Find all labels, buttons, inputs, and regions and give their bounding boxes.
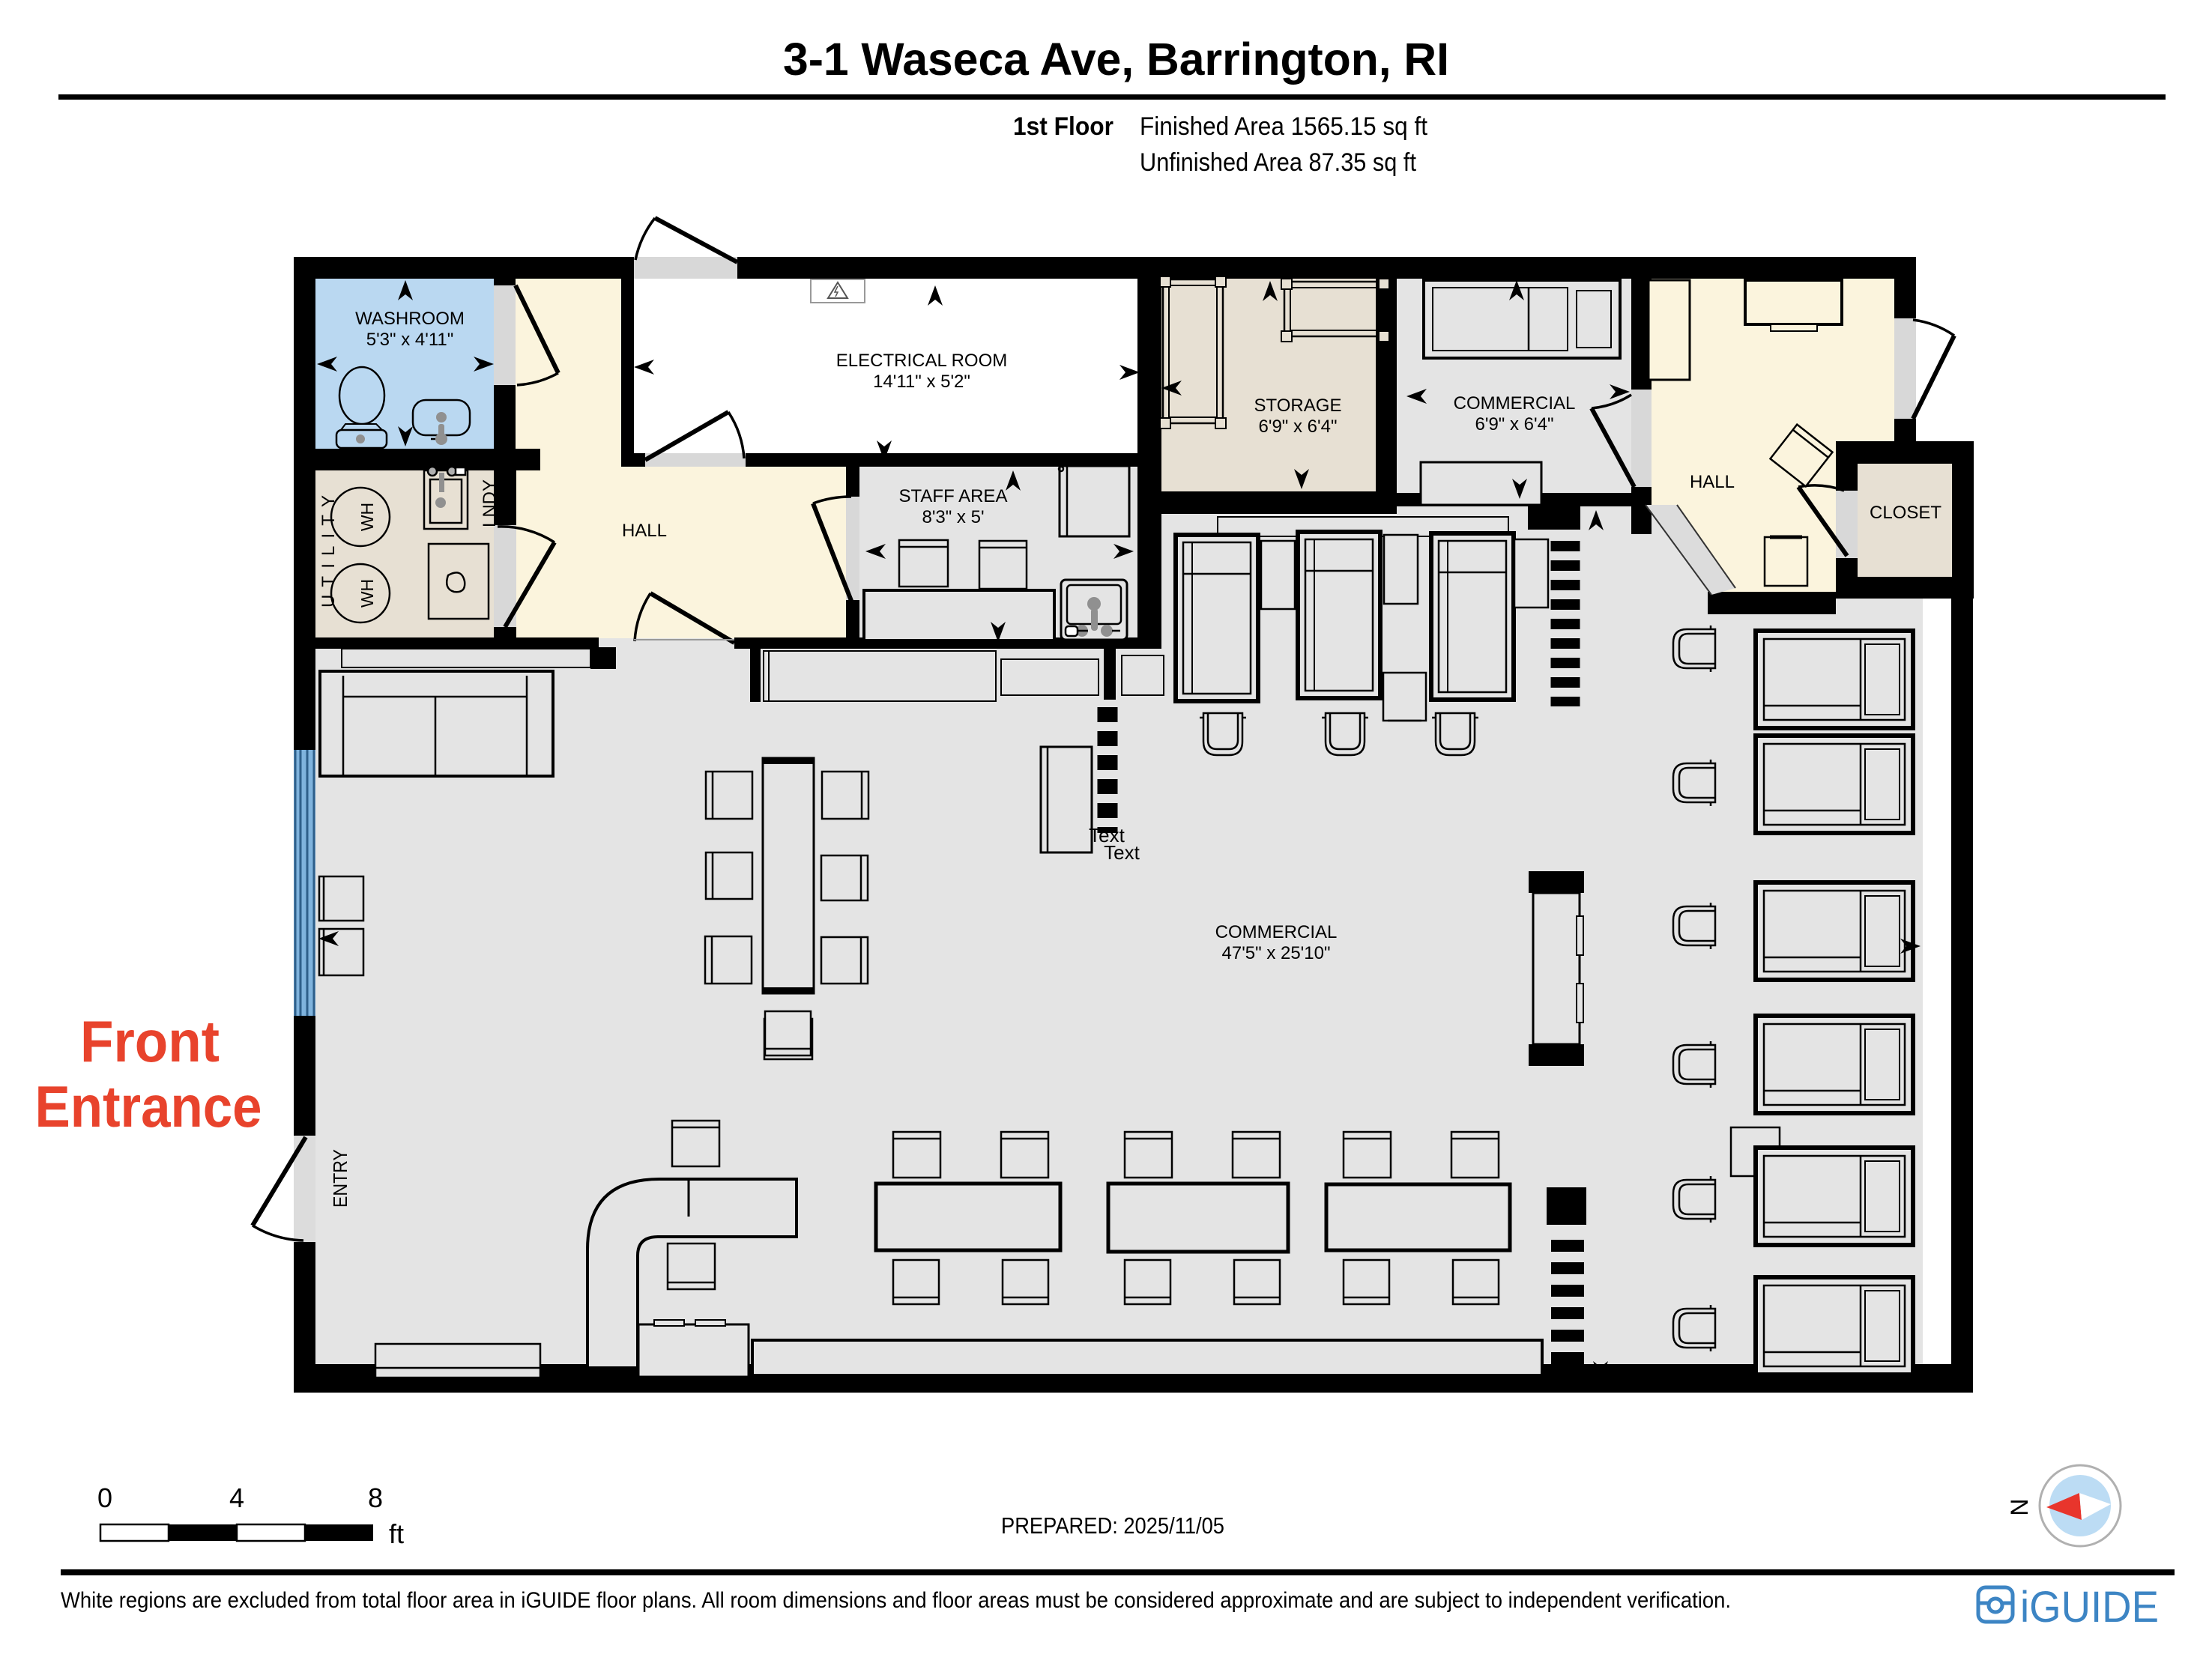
svg-text:iGUIDE: iGUIDE — [2020, 1583, 2159, 1632]
svg-text:COMMERCIAL: COMMERCIAL — [1215, 922, 1338, 942]
svg-text:ELECTRICAL ROOM: ELECTRICAL ROOM — [836, 351, 1007, 371]
svg-text:WASHROOM: WASHROOM — [355, 309, 465, 329]
svg-text:STORAGE: STORAGE — [1254, 396, 1342, 416]
svg-text:6'9" x 6'4": 6'9" x 6'4" — [1475, 414, 1554, 434]
svg-text:8'3" x 5': 8'3" x 5' — [922, 507, 984, 527]
svg-text:47'5" x 25'10": 47'5" x 25'10" — [1222, 943, 1331, 963]
svg-text:Finished Area 1565.15 sq ft: Finished Area 1565.15 sq ft — [1140, 112, 1428, 141]
svg-text:3-1 Waseca Ave, Barrington, RI: 3-1 Waseca Ave, Barrington, RI — [783, 34, 1449, 85]
svg-text:0: 0 — [97, 1482, 112, 1513]
svg-text:HALL: HALL — [622, 521, 667, 541]
svg-text:COMMERCIAL: COMMERCIAL — [1454, 393, 1576, 414]
svg-text:White regions are excluded fro: White regions are excluded from total fl… — [61, 1588, 1731, 1613]
svg-text:Entrance: Entrance — [35, 1073, 262, 1139]
svg-text:Text: Text — [1104, 841, 1140, 864]
svg-text:CLOSET: CLOSET — [1870, 503, 1941, 523]
svg-text:Front: Front — [80, 1008, 220, 1074]
svg-text:STAFF AREA: STAFF AREA — [899, 486, 1008, 506]
svg-text:ft: ft — [389, 1518, 404, 1549]
svg-text:HALL: HALL — [1690, 472, 1735, 492]
svg-text:5'3" x 4'11": 5'3" x 4'11" — [366, 330, 454, 350]
svg-text:14'11" x 5'2": 14'11" x 5'2" — [873, 372, 970, 392]
svg-text:WH: WH — [357, 503, 377, 531]
svg-text:WH: WH — [357, 579, 377, 608]
svg-text:1st Floor: 1st Floor — [1013, 112, 1113, 141]
svg-text:N: N — [2006, 1498, 2033, 1515]
svg-text:ENTRY: ENTRY — [329, 1149, 351, 1208]
svg-text:6'9" x 6'4": 6'9" x 6'4" — [1259, 417, 1338, 437]
svg-text:4: 4 — [229, 1482, 244, 1513]
svg-text:PREPARED: 2025/11/05: PREPARED: 2025/11/05 — [1001, 1512, 1224, 1539]
svg-text:LNDY: LNDY — [480, 479, 500, 527]
svg-text:8: 8 — [368, 1482, 383, 1513]
svg-text:Unfinished Area 87.35 sq ft: Unfinished Area 87.35 sq ft — [1140, 148, 1417, 177]
